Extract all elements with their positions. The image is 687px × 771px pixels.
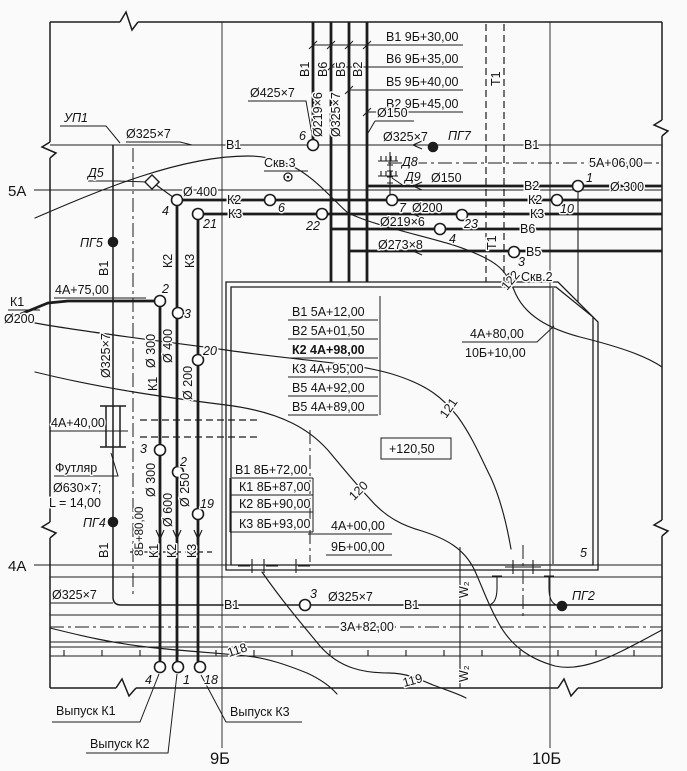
- pg5-label: ПГ5: [80, 236, 103, 250]
- coord-9b00: 9Б+00,00: [331, 540, 385, 554]
- axis-10b-label: 10Б: [532, 750, 561, 768]
- dia-600-k2low: Ø 600: [161, 493, 175, 527]
- dia-200-k3v: Ø 200: [181, 366, 195, 400]
- mh21-num: 21: [202, 217, 217, 231]
- mh19-num: 19: [200, 497, 214, 511]
- skv2-label: Скв.2: [521, 270, 553, 284]
- manhole-2-k1: [155, 296, 166, 307]
- coord-10b10: 10Б+10,00: [465, 346, 526, 360]
- dia-425: Ø425×7: [250, 86, 295, 100]
- k3-rot-lower: К3: [185, 544, 199, 558]
- mh3-v5-num: 3: [518, 255, 525, 269]
- bldg-corner-5: 5: [580, 546, 587, 560]
- low-table-row-3: К2 8Б+90,00: [239, 497, 310, 511]
- t1-label-top: Т1: [489, 71, 503, 86]
- coord-8b80: 8Б+80,00: [134, 507, 146, 556]
- coord-4a75: 4А+75,00: [55, 283, 109, 297]
- up1-label: УП1: [63, 111, 88, 125]
- drawing-svg: В1 9Б+30,00В6 9Б+35,00В5 9Б+40,00В2 9Б+4…: [0, 0, 687, 771]
- dia-300-k1v: Ø 300: [144, 334, 158, 368]
- dia-325-bottomleft: Ø325×7: [52, 588, 97, 602]
- coord-5a06: 5А+06,00: [589, 156, 643, 170]
- axis-9b-label: 9Б: [210, 750, 230, 768]
- v1-rot-lower: В1: [97, 543, 111, 558]
- futlyar-line-3: L = 14,00: [49, 496, 101, 510]
- riser-table-row-1: В1 9Б+30,00: [386, 30, 459, 44]
- mh3-k2-num: 3: [184, 307, 191, 321]
- v6-label: В6: [520, 222, 535, 236]
- contour-118: [50, 628, 337, 694]
- dia-200-k2: Ø200: [412, 201, 443, 215]
- pg4-label: ПГ4: [83, 516, 106, 530]
- skv3-label: Скв.3: [264, 156, 296, 170]
- k2-label-right: К2: [528, 193, 542, 207]
- contour-121-label: 121: [437, 396, 460, 421]
- dia-325-v1v: Ø325×7: [99, 333, 113, 378]
- k2-label-left: К2: [227, 193, 241, 207]
- axis-4a-label: 4А: [8, 558, 26, 575]
- mh2-k1-num: 2: [161, 282, 169, 296]
- mh1-num: 1: [586, 171, 593, 185]
- k1-rot-lower: К1: [147, 544, 161, 558]
- riser-dia-v6: Ø219×6: [311, 92, 325, 137]
- dia-273-v5h: Ø273×8: [378, 238, 423, 252]
- node-d5: [145, 175, 159, 189]
- w2-label-2: W₂: [457, 665, 471, 682]
- pipe-k1-inlet: [16, 301, 160, 316]
- contour-122-label: 122: [499, 268, 523, 293]
- low-table-row-4: К3 8Б+93,00: [239, 517, 310, 531]
- d5-label: Д5: [86, 166, 104, 180]
- manhole-1: [573, 181, 584, 192]
- t1-label-mid: Т1: [485, 235, 499, 250]
- low-table-row-1: В1 8Б+72,00: [235, 463, 308, 477]
- contour-120-label: 120: [346, 478, 371, 503]
- manhole-3-v1: [300, 600, 311, 611]
- k1-in-dia: Ø200: [4, 312, 35, 326]
- contour-119-label: 119: [401, 671, 424, 690]
- labels-layer: В1 9Б+30,00В6 9Б+35,00В5 9Б+40,00В2 9Б+4…: [4, 30, 644, 768]
- mh10-num: 10: [560, 202, 574, 216]
- mh1-out-num: 1: [183, 673, 190, 687]
- utility-site-plan: В1 9Б+30,00В6 9Б+35,00В5 9Б+40,00В2 9Б+4…: [0, 0, 687, 771]
- mh18-out-num: 18: [204, 673, 218, 687]
- street-lines-layer: [50, 577, 662, 656]
- dia-250-k3low: Ø 250: [178, 473, 192, 507]
- coord-4a40: 4А+40,00: [51, 416, 105, 430]
- dia-150-top: Ø150: [377, 106, 408, 120]
- hydrant-pg7: [428, 142, 438, 152]
- pg2-label: ПГ2: [572, 589, 595, 603]
- manhole-4-k2: [172, 195, 183, 206]
- dia-150-d9: Ø150: [431, 171, 462, 185]
- v1-rot-upper: В1: [97, 261, 111, 276]
- hydrant-pg4: [108, 517, 118, 527]
- riser-label-v2: В2: [351, 62, 365, 77]
- mh4-v6-num: 4: [449, 232, 456, 246]
- bldg-table-row-5: В5 4А+92,00: [292, 381, 365, 395]
- vypusk-k2-label: Выпуск К2: [90, 737, 150, 751]
- hydrant-pg2: [557, 601, 567, 611]
- mh22-num: 22: [305, 219, 320, 233]
- v1-label-right: В1: [524, 138, 539, 152]
- ground-ticks: [64, 650, 634, 656]
- v1-label-bottom-2: В1: [404, 598, 419, 612]
- d9-label: Д9: [403, 170, 421, 184]
- v5-label: В5: [526, 245, 541, 259]
- mh23-num: 23: [463, 217, 478, 231]
- coord-4a80: 4А+80,00: [470, 327, 524, 341]
- d8-label: Д8: [400, 155, 418, 169]
- manhole-6-k2: [265, 195, 276, 206]
- k3-rot-upper: К3: [183, 254, 197, 268]
- mh6-k2-num: 6: [278, 201, 285, 215]
- riser-label-v1: В1: [298, 62, 312, 77]
- v1-label-left: В1: [226, 138, 241, 152]
- bldg-table-row-2: В2 5А+01,50: [292, 324, 365, 338]
- dia-325-upleft: Ø325×7: [126, 127, 171, 141]
- manhole-4-outfall: [155, 662, 166, 673]
- mh6-top-num: 6: [299, 129, 306, 143]
- axis-5a-label: 5А: [8, 183, 26, 200]
- k1-rot-upper: К1: [146, 377, 160, 391]
- coord-3a82: 3А+82,00: [340, 620, 394, 634]
- bldg-table-row-1: В1 5А+12,00: [292, 305, 365, 319]
- riser-label-v5: В5: [334, 62, 348, 77]
- mh20-num: 20: [202, 344, 217, 358]
- contour-118-label: 118: [226, 640, 249, 659]
- dia-400-k2v: Ø 400: [161, 329, 175, 363]
- manhole-7: [387, 195, 398, 206]
- low-table-row-2: К1 8Б+87,00: [239, 480, 310, 494]
- manhole-20: [193, 355, 204, 366]
- riser-table-row-2: В6 9Б+35,00: [386, 52, 459, 66]
- entry-fittings-left: [238, 559, 310, 573]
- w2-label-1: W₂: [457, 581, 471, 598]
- futlyar-line-1: Футляр: [55, 461, 97, 475]
- dia-325-bottommid: Ø325×7: [328, 590, 373, 604]
- dia-325-pg7: Ø325×7: [383, 130, 428, 144]
- bldg-table-row-4: К3 4А+95,00: [292, 362, 364, 376]
- borehole-skv3: [284, 173, 292, 181]
- mh4-out-num: 4: [145, 673, 152, 687]
- manhole-1-outfall: [173, 662, 184, 673]
- manhole-4-v6: [435, 224, 446, 235]
- manhole-18-outfall: [195, 662, 206, 673]
- k3-label-right: К3: [530, 207, 544, 221]
- riser-label-v6: В6: [316, 62, 330, 77]
- bldg-table-row-6: В5 4А+89,00: [292, 400, 365, 414]
- elevation-mark: +120,50: [389, 442, 435, 456]
- k2-rot-lower: К2: [165, 544, 179, 558]
- v2-label: В2: [524, 179, 539, 193]
- mh4-k2-num: 4: [162, 204, 169, 218]
- manhole-21: [193, 209, 204, 220]
- manhole-6-top: [308, 140, 319, 151]
- dia-219-v6h: Ø219×6: [380, 215, 425, 229]
- manhole-3-k2: [173, 308, 184, 319]
- hydrant-pg5: [108, 237, 118, 247]
- mh7-num: 7: [399, 201, 407, 215]
- manhole-22: [317, 209, 328, 220]
- k3-label-left: К3: [228, 207, 242, 221]
- pg7-label: ПГ7: [448, 129, 472, 143]
- riser-dia-v5: Ø325×7: [329, 92, 343, 137]
- k2-rot-upper: К2: [161, 254, 175, 268]
- riser-table-row-3: В5 9Б+40,00: [386, 75, 459, 89]
- vypusk-k1-label: Выпуск К1: [56, 704, 116, 718]
- drain-d8-d9: [378, 152, 398, 195]
- coord-4a00: 4А+00,00: [331, 519, 385, 533]
- dia-300-right: Ø 300: [610, 180, 644, 194]
- mh3-bottom-num: 3: [310, 587, 317, 601]
- bldg-table-row-3: К2 4А+98,00: [292, 343, 365, 357]
- k1-in-label: К1: [10, 295, 24, 309]
- dia-300-k1low: Ø 300: [144, 463, 158, 497]
- manhole-3-k1-low: [155, 445, 166, 456]
- vypusk-k3-label: Выпуск К3: [230, 705, 290, 719]
- mh2-k2low-num: 2: [179, 455, 187, 469]
- mh3-k1low-num: 3: [140, 442, 147, 456]
- leaders-layer: [8, 41, 554, 753]
- dia-400-k2h: Ø 400: [183, 185, 217, 199]
- v1-label-bottom-1: В1: [224, 598, 239, 612]
- futlyar-line-2: Ø630×7;: [53, 481, 101, 495]
